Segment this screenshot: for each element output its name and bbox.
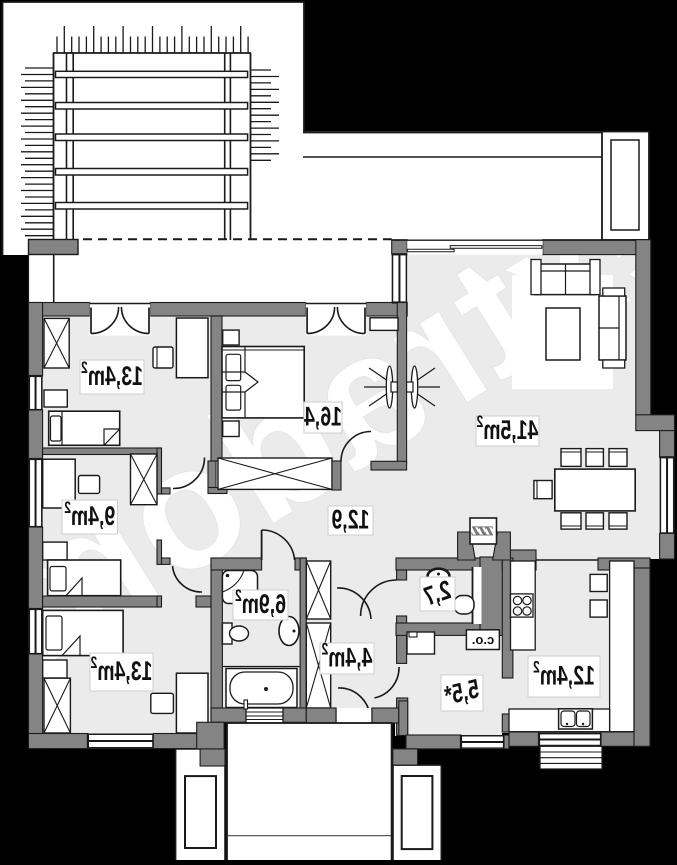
svg-text:6,9m2: 6,9m2 bbox=[235, 587, 286, 620]
svg-text:zzz: zzz bbox=[471, 519, 494, 541]
svg-text:4,4m2: 4,4m2 bbox=[321, 640, 372, 673]
svg-text:16,4: 16,4 bbox=[304, 402, 342, 432]
svg-text:9,4m2: 9,4m2 bbox=[64, 499, 115, 532]
svg-text:12,4m2: 12,4m2 bbox=[533, 658, 595, 691]
svg-text:c.o.: c.o. bbox=[472, 632, 494, 647]
svg-text:12,9: 12,9 bbox=[332, 505, 370, 535]
svg-text:13,4m2: 13,4m2 bbox=[91, 654, 153, 687]
svg-text:13,4m2: 13,4m2 bbox=[81, 359, 143, 392]
svg-text:41,5m2: 41,5m2 bbox=[477, 413, 539, 446]
